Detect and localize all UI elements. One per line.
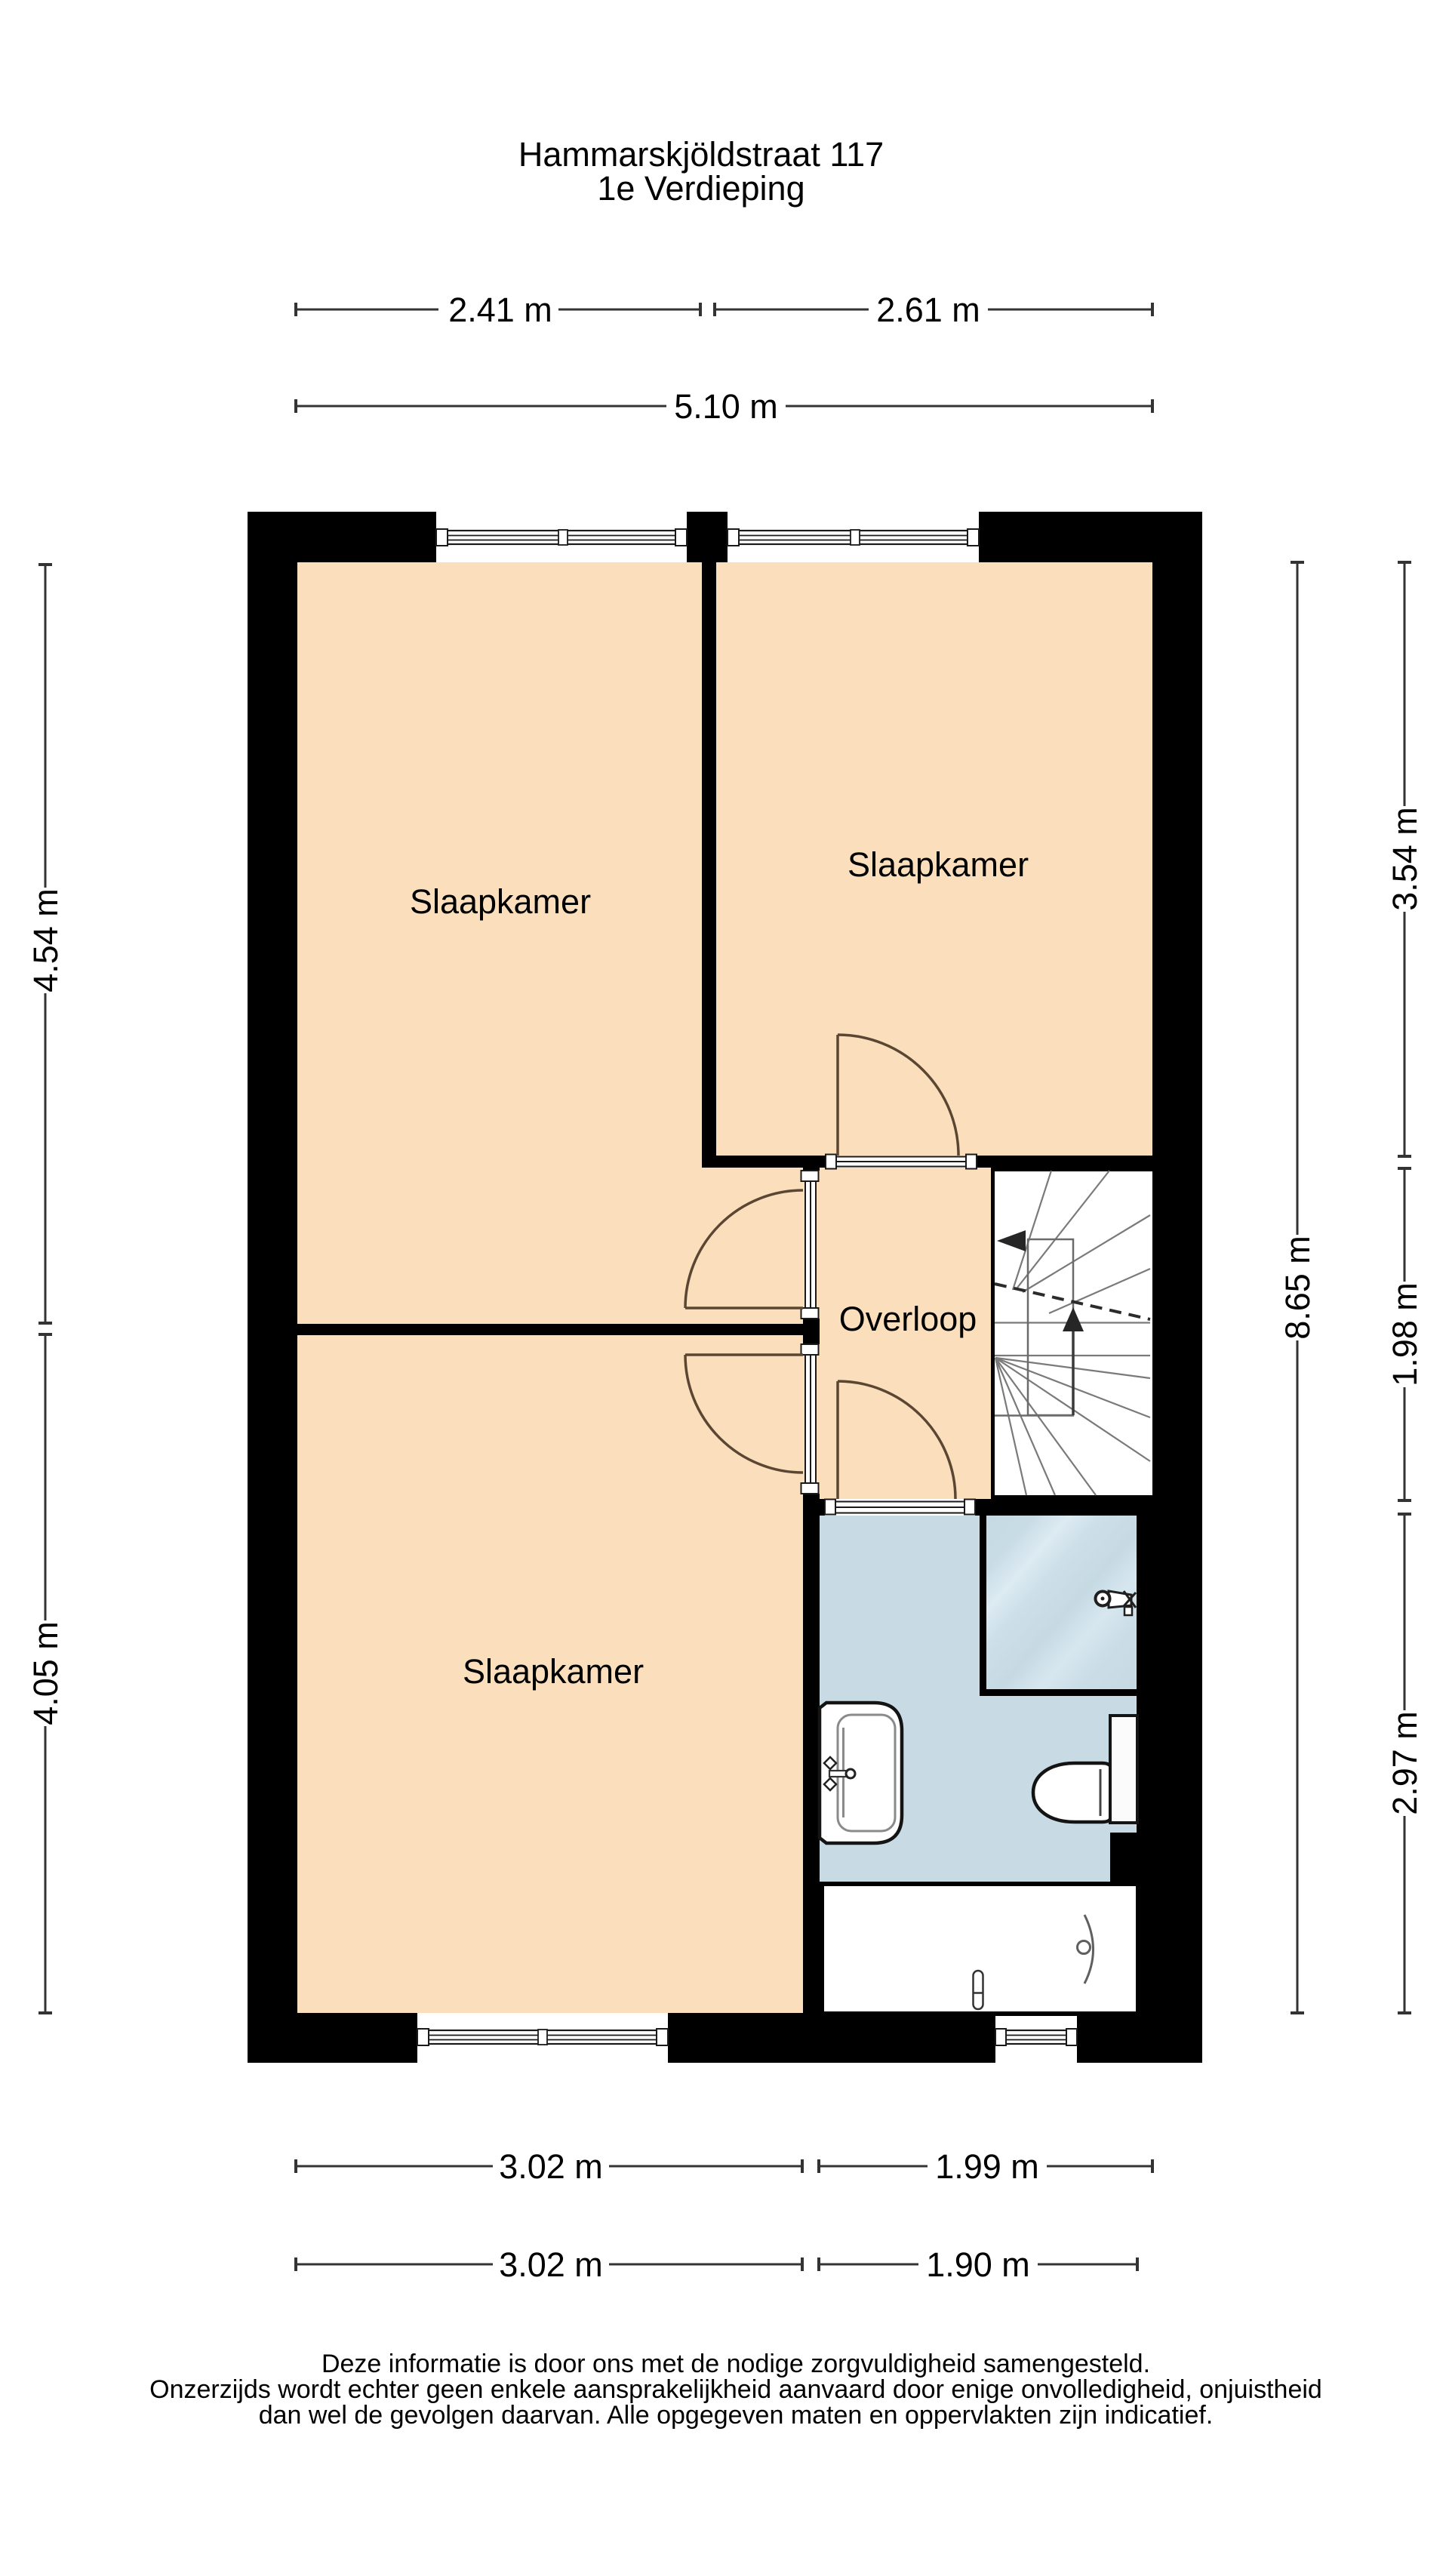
- svg-text:1.99 m: 1.99 m: [935, 2147, 1039, 2186]
- svg-text:2.41 m: 2.41 m: [448, 291, 552, 329]
- svg-text:8.65 m: 8.65 m: [1278, 1236, 1317, 1340]
- svg-text:3.02 m: 3.02 m: [499, 2147, 603, 2186]
- svg-text:3.02 m: 3.02 m: [499, 2245, 603, 2284]
- svg-text:Deze informatie is door ons me: Deze informatie is door ons met de nodig…: [321, 2350, 1150, 2378]
- svg-text:2.97 m: 2.97 m: [1386, 1711, 1424, 1815]
- svg-text:4.54 m: 4.54 m: [26, 888, 65, 993]
- svg-text:2.61 m: 2.61 m: [876, 291, 980, 329]
- svg-text:Overloop: Overloop: [839, 1300, 977, 1338]
- svg-text:Slaapkamer: Slaapkamer: [410, 882, 591, 921]
- svg-text:4.05 m: 4.05 m: [26, 1621, 65, 1725]
- svg-text:1e Verdieping: 1e Verdieping: [597, 169, 804, 208]
- svg-text:Onzerzijds wordt echter geen e: Onzerzijds wordt echter geen enkele aans…: [149, 2375, 1322, 2404]
- svg-text:1.90 m: 1.90 m: [926, 2245, 1030, 2284]
- svg-text:Slaapkamer: Slaapkamer: [848, 845, 1029, 884]
- svg-text:Slaapkamer: Slaapkamer: [463, 1652, 644, 1691]
- svg-text:dan wel de gevolgen daarvan. A: dan wel de gevolgen daarvan. Alle opgege…: [259, 2401, 1214, 2430]
- svg-text:3.54 m: 3.54 m: [1386, 807, 1424, 911]
- svg-text:1.98 m: 1.98 m: [1386, 1282, 1424, 1386]
- svg-text:5.10 m: 5.10 m: [674, 387, 778, 426]
- svg-text:Hammarskjöldstraat 117: Hammarskjöldstraat 117: [518, 135, 884, 174]
